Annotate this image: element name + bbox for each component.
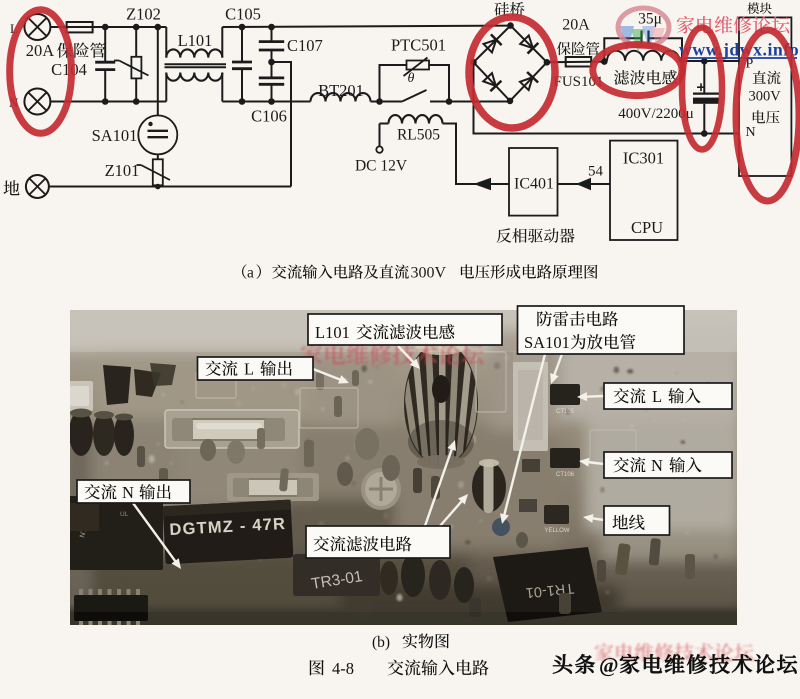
svg-text:L: L xyxy=(652,387,662,406)
svg-text:Z102: Z102 xyxy=(126,5,161,24)
svg-text:L: L xyxy=(244,360,254,379)
svg-text:N: N xyxy=(651,456,663,475)
svg-text:L101: L101 xyxy=(315,323,350,342)
svg-text:54: 54 xyxy=(588,164,604,180)
svg-text:L101: L101 xyxy=(178,31,213,50)
svg-text:IC401: IC401 xyxy=(514,176,554,193)
svg-text:SA101: SA101 xyxy=(524,333,570,352)
svg-text:θ: θ xyxy=(408,71,415,86)
svg-text:4-8: 4-8 xyxy=(332,659,354,678)
svg-text:C105: C105 xyxy=(225,5,261,24)
svg-text:CPU: CPU xyxy=(631,218,663,237)
svg-text:SA101: SA101 xyxy=(92,126,138,145)
svg-text:N: N xyxy=(122,483,134,502)
svg-text:RL505: RL505 xyxy=(397,127,440,144)
svg-text:N: N xyxy=(746,125,756,140)
svg-text:PTC501: PTC501 xyxy=(391,36,446,55)
svg-text:DC 12V: DC 12V xyxy=(355,158,408,175)
svg-text:20A: 20A xyxy=(26,41,55,60)
svg-text:C106: C106 xyxy=(251,107,287,126)
svg-text:20A: 20A xyxy=(562,17,590,34)
svg-text:BT201: BT201 xyxy=(318,81,364,100)
svg-text:(b): (b) xyxy=(372,634,390,651)
svg-text:IC301: IC301 xyxy=(623,149,664,168)
svg-text:a: a xyxy=(247,265,254,282)
svg-text:300V: 300V xyxy=(749,89,782,105)
svg-text:Z101: Z101 xyxy=(105,161,140,180)
svg-text:@: @ xyxy=(599,653,619,677)
svg-text:C107: C107 xyxy=(287,36,323,55)
svg-text:300V: 300V xyxy=(411,265,447,282)
